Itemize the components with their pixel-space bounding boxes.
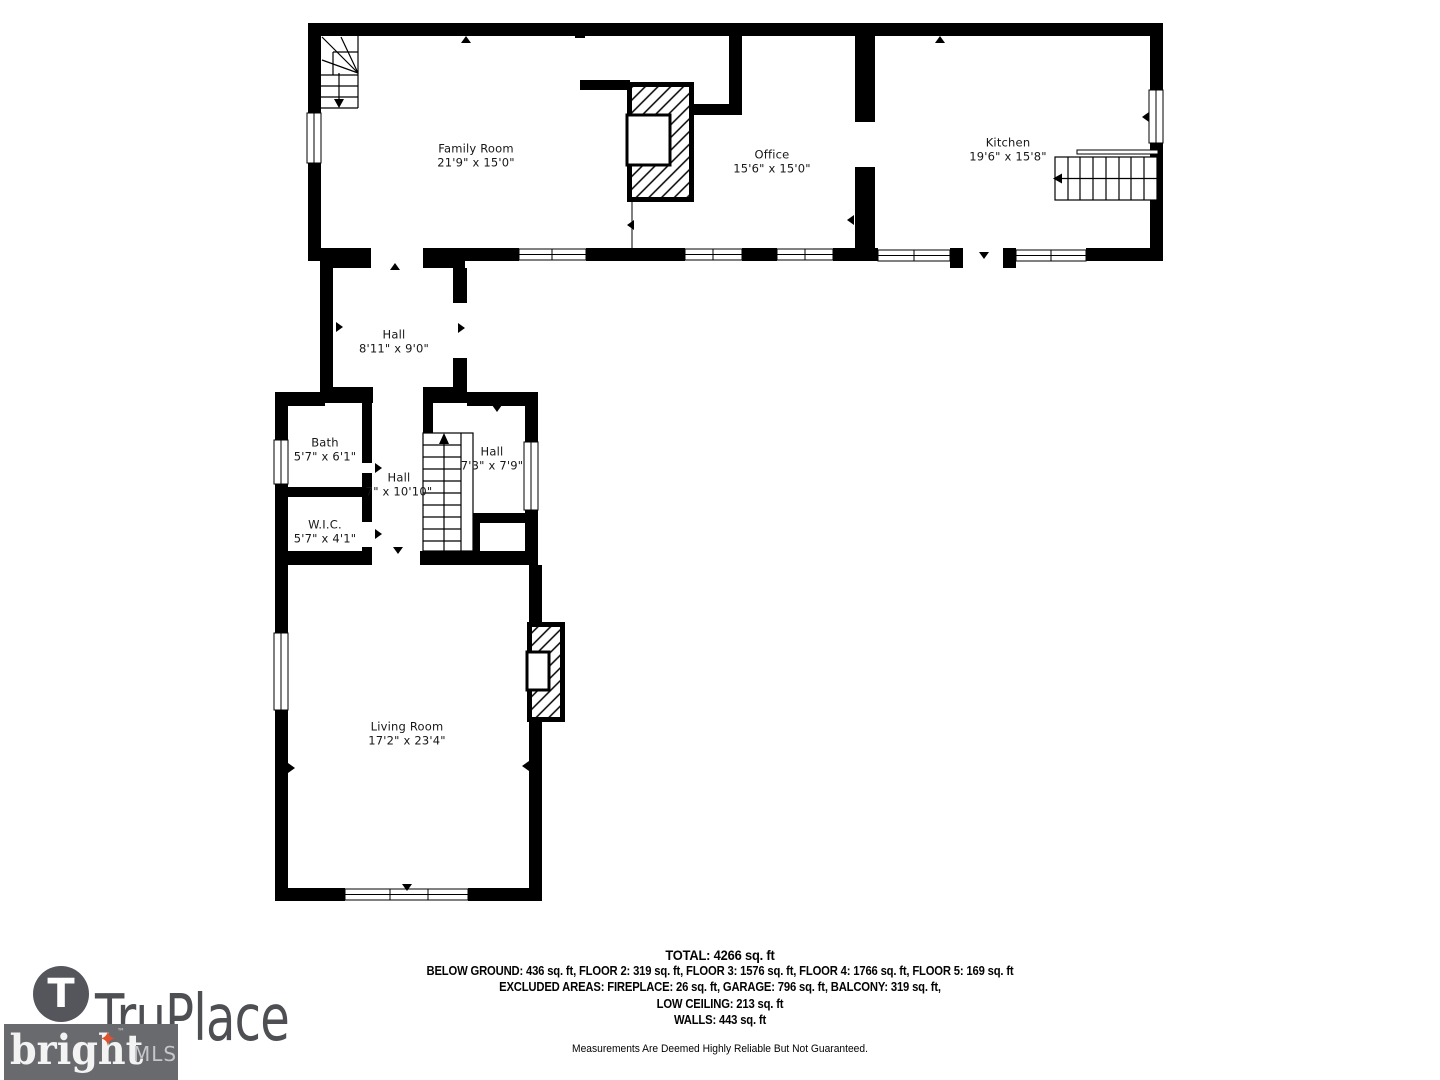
room-label-hall-upper: Hall 8'11" x 9'0"	[359, 328, 429, 355]
room-name: Living Room	[368, 720, 446, 734]
staircase-family-room	[321, 36, 358, 108]
room-name: Hall	[461, 445, 524, 459]
floor-areas: BELOW GROUND: 436 sq. ft, FLOOR 2: 319 s…	[86, 963, 1353, 979]
truplace-monogram-icon: T	[33, 966, 89, 1022]
room-dims: 21'9" x 15'0"	[437, 156, 515, 170]
window-band-3	[777, 249, 833, 260]
room-dims: 5'7" x 6'1"	[294, 450, 357, 464]
room-dims: 8'11" x 9'0"	[359, 342, 429, 356]
room-name: Bath	[294, 436, 357, 450]
room-name: Hall	[366, 471, 433, 485]
room-label-office: Office 15'6" x 15'0"	[733, 148, 811, 175]
room-label-kitchen: Kitchen 19'6" x 15'8"	[969, 136, 1047, 163]
floor-plan-svg	[0, 0, 1440, 1080]
room-label-hall-stairs: Hall 7'3" x 7'9"	[461, 445, 524, 472]
fireplace-family-room	[627, 82, 694, 248]
room-label-family-room: Family Room 21'9" x 15'0"	[437, 142, 515, 169]
window-bath	[274, 440, 288, 484]
window-kitchen-2	[1016, 250, 1086, 261]
room-dims: 17'2" x 23'4"	[368, 734, 446, 748]
star-icon: ✦	[99, 1029, 117, 1050]
room-name: Office	[733, 148, 811, 162]
window-band-1	[519, 249, 586, 260]
room-label-hall-middle: Hall 7" x 10'10"	[366, 471, 433, 498]
truplace-monogram: T	[47, 971, 74, 1017]
room-name: W.I.C.	[294, 518, 357, 532]
fireplace-living-room	[527, 622, 565, 722]
room-dims: 7" x 10'10"	[366, 485, 433, 499]
door-markers	[288, 36, 1149, 891]
trademark-symbol: ™	[117, 1028, 125, 1036]
room-dims: 7'3" x 7'9"	[461, 459, 524, 473]
total-area: TOTAL: 4266 sq. ft	[58, 947, 1383, 963]
window-hall-right	[524, 442, 538, 510]
room-name: Hall	[359, 328, 429, 342]
room-name: Family Room	[437, 142, 515, 156]
room-dims: 15'6" x 15'0"	[733, 162, 811, 176]
room-dims: 19'6" x 15'8"	[969, 150, 1047, 164]
bright-wordmark: bright	[10, 1030, 143, 1071]
window-kitchen-1	[878, 250, 950, 261]
room-name: Kitchen	[969, 136, 1047, 150]
room-label-wic: W.I.C. 5'7" x 4'1"	[294, 518, 357, 545]
window-living-left	[274, 633, 288, 710]
window-kitchen-right	[1149, 90, 1163, 143]
staircase-kitchen	[1053, 150, 1158, 200]
window-family-left	[307, 113, 321, 163]
room-label-bath: Bath 5'7" x 6'1"	[294, 436, 357, 463]
window-band-2	[685, 249, 742, 260]
room-dims: 5'7" x 4'1"	[294, 532, 357, 546]
window-living-bottom	[345, 889, 468, 900]
room-label-living-room: Living Room 17'2" x 23'4"	[368, 720, 446, 747]
mls-suffix: MLS	[133, 1044, 177, 1064]
